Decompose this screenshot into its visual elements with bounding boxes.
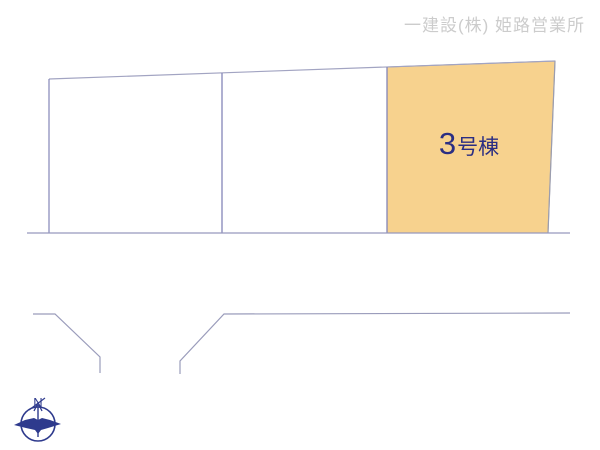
road-edge-right	[180, 313, 570, 374]
compass: N	[14, 395, 61, 441]
site-plan-page: 一建設(株) 姫路営業所	[0, 0, 600, 450]
plot-3-region	[387, 61, 555, 233]
compass-north-label: N	[33, 395, 42, 410]
site-plan-drawing: N	[0, 0, 600, 450]
road-edge-left	[33, 314, 100, 373]
